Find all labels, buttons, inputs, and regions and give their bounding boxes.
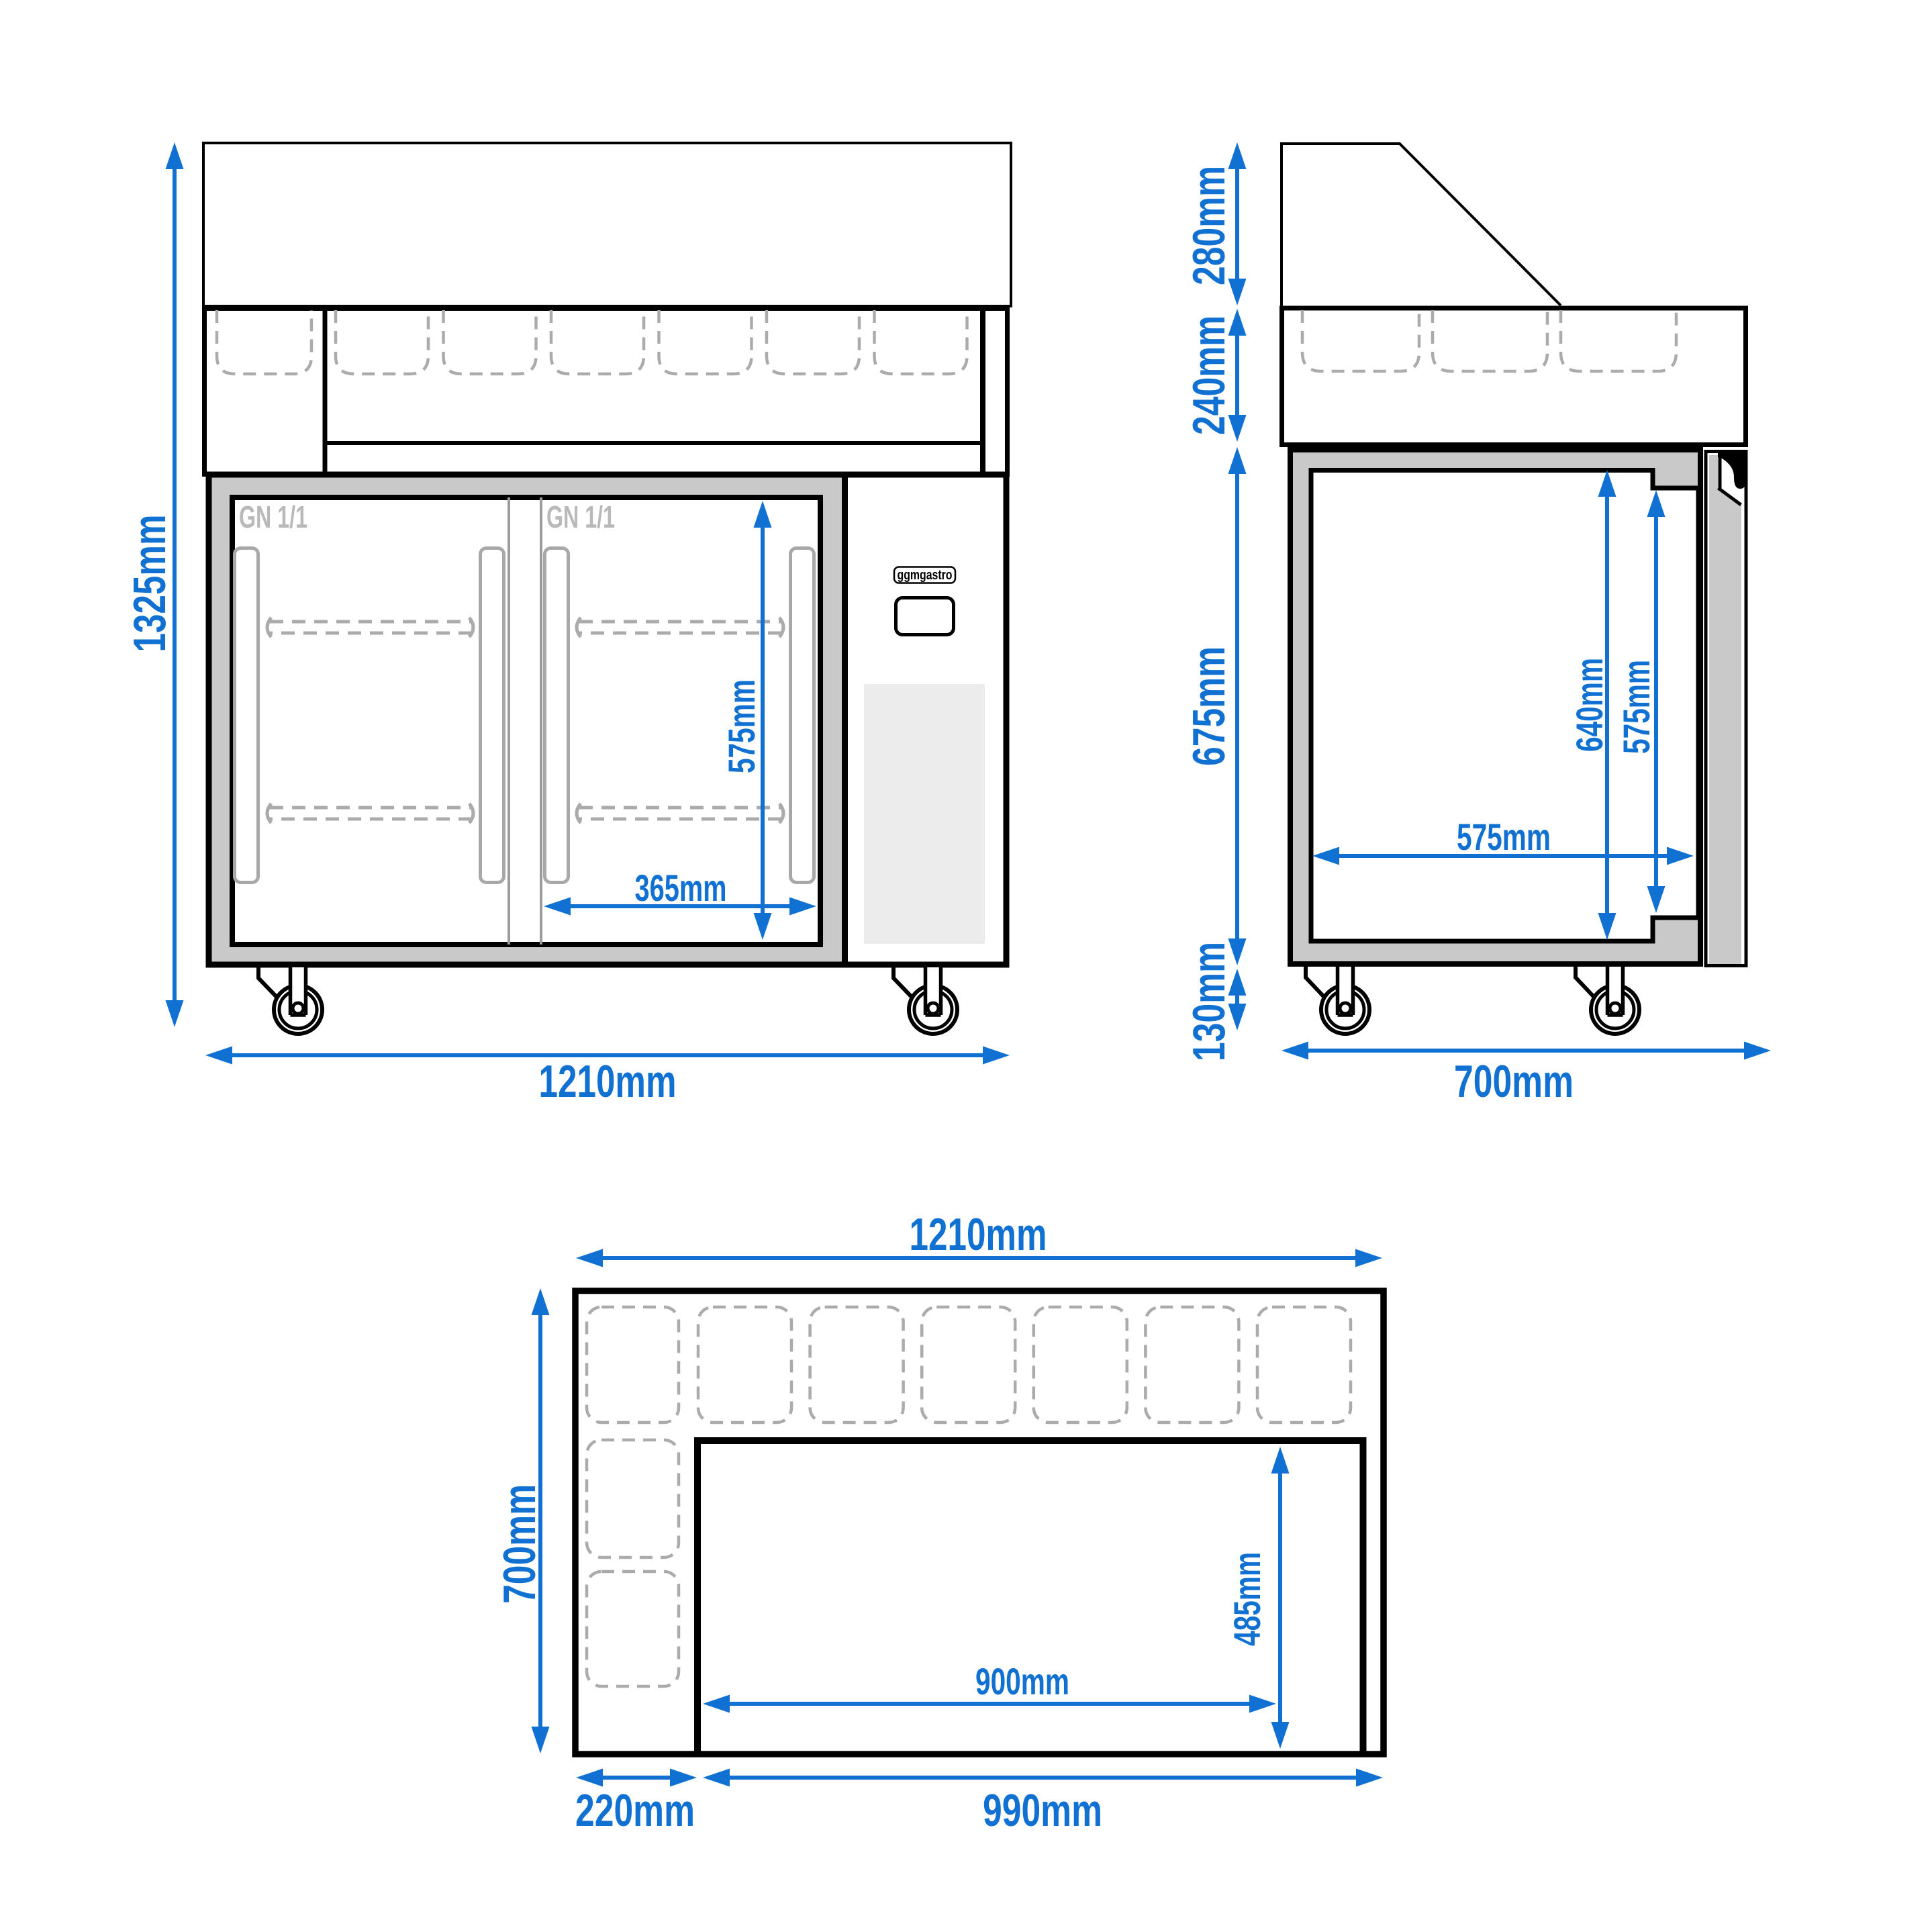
svg-text:640mm: 640mm [1568, 658, 1610, 752]
svg-text:575mm: 575mm [1457, 816, 1551, 858]
svg-text:485mm: 485mm [1226, 1552, 1268, 1646]
svg-text:ggmgastro: ggmgastro [898, 568, 953, 583]
svg-text:990mm: 990mm [983, 1785, 1102, 1836]
svg-text:280mm: 280mm [1184, 166, 1235, 285]
svg-text:365mm: 365mm [635, 867, 727, 909]
svg-text:GN 1/1: GN 1/1 [546, 499, 615, 534]
svg-text:1325mm: 1325mm [124, 515, 175, 653]
svg-text:240mm: 240mm [1184, 316, 1235, 435]
svg-text:GN 1/1: GN 1/1 [239, 499, 307, 534]
svg-text:675mm: 675mm [1184, 646, 1235, 766]
svg-text:900mm: 900mm [975, 1660, 1069, 1702]
svg-text:575mm: 575mm [1615, 660, 1657, 754]
svg-text:130mm: 130mm [1184, 942, 1235, 1061]
svg-text:700mm: 700mm [1454, 1056, 1574, 1107]
svg-text:700mm: 700mm [494, 1484, 545, 1604]
svg-text:1210mm: 1210mm [539, 1056, 677, 1107]
svg-text:220mm: 220mm [575, 1785, 695, 1836]
svg-text:1210mm: 1210mm [910, 1209, 1047, 1260]
svg-text:575mm: 575mm [720, 679, 763, 773]
